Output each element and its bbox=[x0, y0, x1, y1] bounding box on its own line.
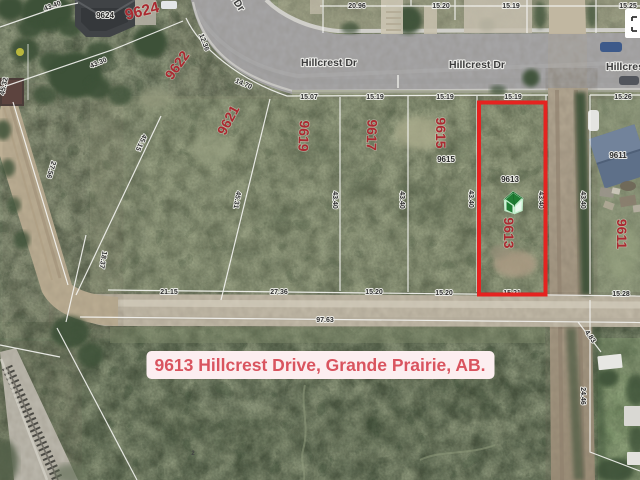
svg-text:21.15: 21.15 bbox=[160, 289, 178, 296]
svg-text:15.20: 15.20 bbox=[435, 290, 453, 297]
svg-text:15.19: 15.19 bbox=[504, 94, 522, 101]
svg-text:15.20: 15.20 bbox=[432, 3, 450, 10]
svg-text:43.40: 43.40 bbox=[398, 191, 405, 209]
svg-text:15.26: 15.26 bbox=[614, 94, 632, 101]
svg-text:43.40: 43.40 bbox=[331, 191, 338, 209]
svg-text:9619: 9619 bbox=[295, 120, 313, 152]
svg-text:9617: 9617 bbox=[363, 119, 380, 151]
svg-text:Hillcrest Dr: Hillcrest Dr bbox=[606, 61, 640, 73]
svg-text:9624: 9624 bbox=[96, 11, 114, 20]
svg-text:97.63: 97.63 bbox=[316, 317, 334, 324]
svg-text:15.07: 15.07 bbox=[300, 94, 318, 101]
svg-text:15.19: 15.19 bbox=[502, 3, 520, 10]
svg-text:Hillcrest Dr: Hillcrest Dr bbox=[449, 59, 505, 71]
svg-text:27.36: 27.36 bbox=[270, 289, 288, 296]
svg-text:9613 Hillcrest Drive, Grande P: 9613 Hillcrest Drive, Grande Prairie, AB… bbox=[154, 355, 485, 375]
svg-text:43.40: 43.40 bbox=[579, 191, 586, 209]
svg-text:9611: 9611 bbox=[609, 151, 627, 160]
svg-text:9615: 9615 bbox=[433, 117, 449, 148]
svg-text:15.19: 15.19 bbox=[366, 94, 384, 101]
svg-text:9615: 9615 bbox=[437, 155, 455, 164]
svg-text:9611: 9611 bbox=[614, 219, 630, 250]
svg-text:9613: 9613 bbox=[501, 217, 517, 248]
svg-text:Hillcrest Dr: Hillcrest Dr bbox=[301, 57, 357, 69]
svg-text:15.25: 15.25 bbox=[619, 3, 637, 10]
svg-text:43.40: 43.40 bbox=[467, 190, 474, 208]
svg-text:15.19: 15.19 bbox=[436, 94, 454, 101]
svg-text:15.20: 15.20 bbox=[365, 289, 383, 296]
svg-text:20.96: 20.96 bbox=[348, 3, 366, 10]
svg-text:9613: 9613 bbox=[501, 175, 519, 184]
svg-text:43.40: 43.40 bbox=[537, 191, 544, 209]
svg-text:15.28: 15.28 bbox=[612, 291, 630, 298]
svg-text:24.46: 24.46 bbox=[579, 387, 586, 405]
